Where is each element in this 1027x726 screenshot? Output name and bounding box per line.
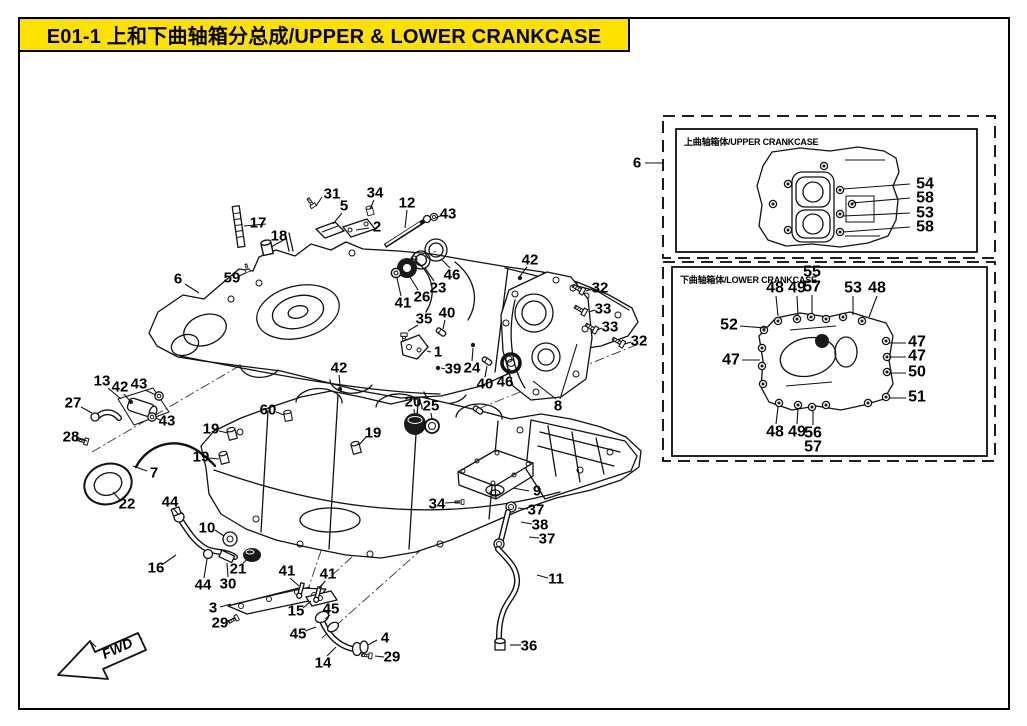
- callout-21: 21: [230, 561, 247, 578]
- callout-42: 42: [331, 360, 348, 377]
- callout-23: 23: [430, 280, 447, 297]
- callout-35: 35: [416, 311, 433, 328]
- callout-47: 47: [722, 352, 740, 369]
- callout-19: 19: [365, 425, 382, 442]
- catalog-page: { "header": { "title": "E01-1 上和下曲轴箱分总成/…: [0, 0, 1027, 726]
- callout-2: 2: [373, 219, 381, 236]
- leader-line: [843, 213, 910, 216]
- leader-line: [316, 197, 322, 206]
- callout-43: 43: [131, 376, 148, 393]
- leader-line: [375, 656, 384, 657]
- callout-25: 25: [423, 398, 440, 415]
- callout-1: 1: [434, 344, 442, 361]
- callout-12: 12: [399, 195, 416, 212]
- breather-pipe-drawing: [313, 609, 368, 655]
- callout-8: 8: [554, 398, 562, 415]
- inset-lower-drawing: [758, 312, 893, 411]
- leader-line: [843, 184, 910, 189]
- callout-41: 41: [279, 563, 296, 580]
- leader-line: [843, 227, 910, 232]
- callout-36: 36: [521, 638, 538, 655]
- leader-line: [521, 522, 532, 524]
- callout-47: 47: [908, 348, 926, 365]
- callout-29: 29: [384, 649, 401, 666]
- callout-43: 43: [159, 413, 176, 430]
- callout-13: 13: [94, 373, 111, 390]
- inset-lower-label: 下曲轴箱体/LOWER CRANKCASE: [680, 273, 817, 286]
- inset-upper-drawing: [757, 147, 899, 247]
- leader-line: [797, 408, 798, 424]
- inset-lower-box: [663, 262, 995, 461]
- callout-46: 46: [497, 374, 514, 391]
- leader-line: [869, 296, 877, 317]
- callout-14: 14: [315, 655, 332, 672]
- callout-33: 33: [595, 301, 612, 318]
- callout-22: 22: [119, 496, 136, 513]
- callout-44: 44: [195, 577, 212, 594]
- callout-7: 7: [150, 465, 158, 482]
- leader-line: [333, 213, 342, 224]
- leader-line: [852, 198, 910, 203]
- callout-52: 52: [720, 317, 738, 334]
- callout-45: 45: [323, 601, 340, 618]
- callout-11: 11: [548, 571, 564, 588]
- callout-50: 50: [908, 364, 926, 381]
- leader-line: [204, 559, 207, 578]
- callout-19: 19: [193, 449, 210, 466]
- callout-59: 59: [224, 270, 241, 287]
- callout-27: 27: [65, 395, 82, 412]
- callout-48: 48: [766, 424, 784, 441]
- callout-5: 5: [340, 198, 348, 215]
- callout-39: 39: [445, 361, 462, 378]
- callout-16: 16: [148, 560, 165, 577]
- leader-line: [163, 555, 176, 564]
- callout-17: 17: [250, 215, 267, 232]
- page-title: E01-1 上和下曲轴箱分总成/UPPER & LOWER CRANKCASE: [47, 20, 602, 49]
- callout-44: 44: [162, 494, 179, 511]
- callout-15: 15: [288, 603, 305, 620]
- callout-32: 32: [631, 333, 648, 350]
- callout-40: 40: [477, 376, 494, 393]
- callout-32: 32: [592, 280, 609, 297]
- leader-line: [368, 640, 377, 645]
- callout-6: 6: [174, 271, 182, 288]
- callout-24: 24: [464, 360, 481, 377]
- callout-28: 28: [63, 429, 80, 446]
- inset-upper-label: 上曲轴箱体/UPPER CRANKCASE: [684, 135, 818, 148]
- callout-53: 53: [844, 280, 862, 297]
- callout-26: 26: [414, 289, 431, 306]
- callout-60: 60: [260, 402, 277, 419]
- callout-40: 40: [439, 305, 456, 322]
- leader-line: [81, 407, 92, 413]
- callout-41: 41: [395, 295, 412, 312]
- callout-20: 20: [405, 394, 422, 411]
- leader-line: [185, 284, 199, 293]
- callout-layer: 3134124352171859646232641354013924424046…: [63, 155, 934, 672]
- leader-line: [305, 627, 316, 631]
- callout-34: 34: [429, 496, 446, 513]
- leader-line: [529, 537, 539, 538]
- callout-6: 6: [633, 155, 641, 172]
- leader-line: [537, 575, 548, 578]
- callout-57: 57: [804, 439, 822, 456]
- callout-4: 4: [381, 630, 390, 647]
- side-cover-drawing: [501, 272, 592, 400]
- callout-10: 10: [199, 520, 216, 537]
- fwd-arrow: FWD: [58, 633, 146, 679]
- callout-45: 45: [290, 626, 307, 643]
- callout-9: 9: [533, 483, 541, 500]
- callout-34: 34: [367, 185, 384, 202]
- callout-42: 42: [522, 252, 539, 269]
- callout-33: 33: [602, 319, 619, 336]
- callout-43: 43: [440, 206, 457, 223]
- callout-18: 18: [271, 228, 288, 245]
- leader-line: [133, 466, 147, 471]
- callout-41: 41: [320, 566, 337, 583]
- leader-line: [215, 530, 224, 536]
- callout-29: 29: [212, 615, 229, 632]
- leader-line: [776, 296, 778, 316]
- exploded-diagram: FWD 313412435217185964623264135401392442…: [0, 0, 1027, 726]
- callout-31: 31: [324, 186, 341, 203]
- callout-37: 37: [539, 531, 556, 548]
- callout-19: 19: [203, 421, 220, 438]
- breather-assembly-drawing: [76, 388, 169, 445]
- callout-42: 42: [112, 379, 129, 396]
- callout-58: 58: [916, 219, 934, 236]
- dipstick-tube-drawing: [494, 502, 517, 650]
- leader-line: [776, 407, 778, 424]
- callout-51: 51: [908, 389, 926, 406]
- page-header: E01-1 上和下曲轴箱分总成/UPPER & LOWER CRANKCASE: [18, 17, 630, 52]
- leader-line: [405, 210, 407, 228]
- callout-30: 30: [220, 576, 237, 593]
- callout-48: 48: [868, 280, 886, 297]
